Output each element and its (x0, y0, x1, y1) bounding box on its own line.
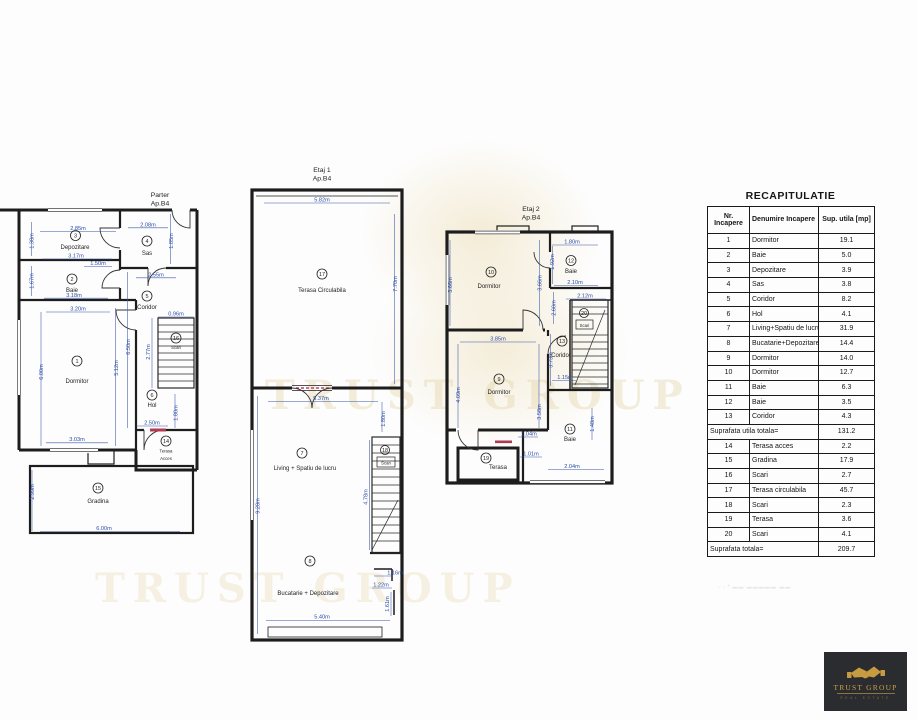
table-row: 19Terasa3.6 (708, 513, 875, 528)
dim-label: 5.40m (314, 615, 330, 621)
table-row: 13Coridor4.3 (708, 410, 875, 425)
parter-dim-lines (32, 214, 195, 532)
dim-label: 3.03m (69, 437, 85, 443)
room-number: 11 (567, 427, 573, 433)
logo-divider (837, 693, 895, 694)
table-row: 11Baie6.3 (708, 380, 875, 395)
room-label-dormitor9: Dormitor (487, 390, 510, 396)
etaj1-dim-lines (258, 203, 395, 634)
room-number: 6 (150, 393, 153, 399)
room-label-living: Living + Spatiu de lucru (274, 466, 337, 472)
table-row: 7Living+Spatiu de lucru31.9 (708, 322, 875, 337)
room-number: 15 (95, 486, 101, 492)
dim-label: 3.66m (537, 275, 543, 291)
table-row: 12Baie3.5 (708, 395, 875, 410)
room-number: 17 (319, 272, 325, 278)
table-row: 2Baie5.0 (708, 248, 875, 263)
etaj1-walls (252, 190, 402, 640)
room-label-scari: Scari (381, 461, 391, 466)
room-label-baie12: Baie (565, 269, 578, 275)
trust-group-logo: TRUST GROUP REAL ESTATE (824, 652, 907, 711)
room-label-depozitare: Depozitare (60, 245, 90, 251)
col-header-name: Denumire Incapere (750, 207, 819, 234)
handshake-icon (847, 664, 885, 681)
dim-label: 0.96m (168, 312, 184, 318)
dim-label: 3.17m (68, 254, 84, 260)
dim-label: 2.08m (140, 223, 156, 229)
dim-label: 6.00m (96, 526, 112, 532)
total-row: Suprafata totala=209.7 (708, 542, 875, 557)
table-row: 3Depozitare3.9 (708, 263, 875, 278)
room-label-bucatarie: Bucatarie + Depozitare (277, 591, 339, 597)
room-label-sas: Sas (142, 251, 152, 257)
room-number: 13 (559, 339, 565, 345)
dim-label: 2.12m (577, 294, 593, 300)
room-number: 8 (308, 559, 311, 565)
table-row: 5Coridor8.2 (708, 292, 875, 307)
parter-stairs (158, 318, 194, 388)
room-number: 20 (581, 311, 587, 317)
dim-label: 1.38m (30, 233, 36, 249)
table-row: 18Scari2.3 (708, 498, 875, 513)
dim-label: 1.80m (564, 240, 580, 246)
etaj2-windows (445, 230, 605, 483)
dim-label: 3.73m (548, 352, 554, 368)
dim-label: 3.66m (448, 277, 454, 293)
room-number: 2 (70, 277, 73, 283)
room-number: 18 (382, 448, 388, 454)
room-number: 3 (74, 234, 77, 240)
table-row: 20Scari4.1 (708, 527, 875, 542)
dim-label: 1.01m (523, 452, 539, 458)
room-number: 9 (497, 377, 500, 383)
room-label-gradina: Gradina (87, 499, 109, 505)
dim-label: 1.16m (387, 571, 403, 577)
room-label-dormitor: Dormitor (65, 379, 88, 385)
table-row: 17Terasa circulabila45.7 (708, 483, 875, 498)
room-number: 10 (488, 270, 494, 276)
dim-label: 1.80m (381, 411, 387, 427)
dim-label: 1.61m (385, 596, 391, 612)
parter-ap-label: Ap.B4 (151, 201, 170, 208)
room-number: 1 (75, 359, 78, 365)
table-row: 16Scari2.7 (708, 469, 875, 484)
dim-label: 5.82m (314, 198, 330, 204)
parter-room-badges (67, 231, 181, 494)
room-number: 12 (568, 259, 574, 265)
dim-label: 6.50m (126, 339, 132, 355)
red-accent-mark (495, 441, 512, 444)
dim-label: 5.12m (114, 360, 120, 376)
col-header-area: Sup. utila [mp] (819, 207, 875, 234)
room-number: 4 (145, 239, 148, 245)
table-row: 6Hol4.1 (708, 307, 875, 322)
dim-label: 4.78m (364, 489, 370, 505)
etaj1-windows (250, 430, 254, 520)
table-row: 1Dormitor19.1 (708, 234, 875, 249)
dim-label: 1.92m (550, 254, 556, 270)
dim-label: 1.22m (373, 583, 389, 589)
dim-label: 2.50m (144, 421, 160, 427)
room-number: 16 (173, 336, 179, 342)
dim-label: 3.18m (66, 293, 82, 299)
room-label-terasa-acces: Terasa (160, 449, 174, 454)
etaj2-plan-svg: Etaj 2 Ap.B4 10 Dormitor 12 Baie 20 Scar… (440, 200, 620, 495)
dim-label: 3.20m (70, 307, 86, 313)
dim-label: 5.37m (313, 396, 329, 402)
scanned-floorplan-sheet: TRUST GROUP TRUST GROUP (0, 0, 917, 720)
room-label-scari20: Scari (580, 323, 590, 328)
dim-label: 1.85m (169, 233, 175, 249)
dim-label: 3.58m (537, 404, 543, 420)
recap-header-row: Nr. Incapere Denumire Incapere Sup. util… (708, 207, 875, 234)
dim-label: 4.09m (456, 387, 462, 403)
etaj1-ap-label: Ap.B4 (313, 176, 332, 183)
recap-table: Nr. Incapere Denumire Incapere Sup. util… (707, 206, 875, 557)
dim-label: 1.50m (90, 261, 106, 267)
table-row: 10Dormitor12.7 (708, 366, 875, 381)
room-label-hol: Hol (147, 403, 156, 409)
subtotal-row: Suprafata utila totala=131.2 (708, 424, 875, 439)
dim-label: 7.70m (393, 276, 399, 292)
table-row: 14Terasa acces2.2 (708, 439, 875, 454)
dim-label: 2.60m (551, 300, 557, 316)
etaj1-title: Etaj 1 (313, 167, 331, 174)
room-number: 14 (163, 439, 169, 445)
room-number: 19 (483, 456, 489, 462)
dim-label: 2.55m (148, 272, 164, 278)
recap-footnote: · · ' —— ————— —— (718, 585, 868, 591)
dim-label: 1.15m (557, 375, 573, 381)
room-label-terasa-circulabila: Terasa Circulabila (298, 288, 346, 294)
etaj1-plan-svg: Etaj 1 Ap.B4 17 Terasa Circulabila 7 Liv… (240, 160, 415, 650)
room-label-terasa-acces: Acces (160, 456, 172, 461)
dim-label: 3.85m (490, 337, 506, 343)
dim-label: 2.85m (70, 226, 86, 232)
dim-label: 2.99m (30, 484, 36, 500)
dim-label: 2.04m (564, 464, 580, 470)
recap-table-section: RECAPITULATIE Nr. Incapere Denumire Inca… (707, 190, 874, 557)
dim-label: 6.00m (39, 364, 45, 380)
table-row: 9Dormitor14.0 (708, 351, 875, 366)
dim-label: 1.48m (590, 416, 596, 432)
table-row: 15Gradina17.9 (708, 454, 875, 469)
red-accent-mark (150, 429, 166, 432)
room-label-dormitor10: Dormitor (477, 284, 500, 290)
etaj2-stairs (572, 300, 608, 388)
etaj2-ap-label: Ap.B4 (522, 215, 541, 222)
room-number: 7 (300, 451, 303, 457)
room-label-terasa19: Terasa (489, 465, 508, 471)
dim-label: 1.04m (521, 432, 537, 438)
parter-plan-svg: Parter Ap.B4 3 Depozitare 4 Sas 2 Baie 5… (0, 185, 210, 553)
room-label-baie11: Baie (564, 437, 577, 443)
dim-label: 9.28m (256, 498, 262, 514)
logo-subtitle: REAL ESTATE (840, 696, 891, 700)
room-label-scari: Scari (171, 345, 181, 350)
recap-title: RECAPITULATIE (707, 190, 874, 202)
table-row: 4Sas3.8 (708, 278, 875, 293)
dim-label: 2.10m (567, 280, 583, 286)
dim-label: 1.80m (173, 405, 179, 421)
room-label-coridor: Coridor (137, 305, 157, 311)
col-header-nr: Nr. Incapere (708, 207, 750, 234)
parter-title: Parter (151, 192, 170, 199)
room-number: 5 (145, 294, 148, 300)
dim-label: 1.67m (30, 273, 36, 289)
logo-title: TRUST GROUP (833, 683, 897, 692)
etaj2-title: Etaj 2 (522, 206, 540, 213)
dim-label: 2.77m (146, 344, 152, 360)
table-row: 8Bucatarie+Depozitare14.4 (708, 336, 875, 351)
